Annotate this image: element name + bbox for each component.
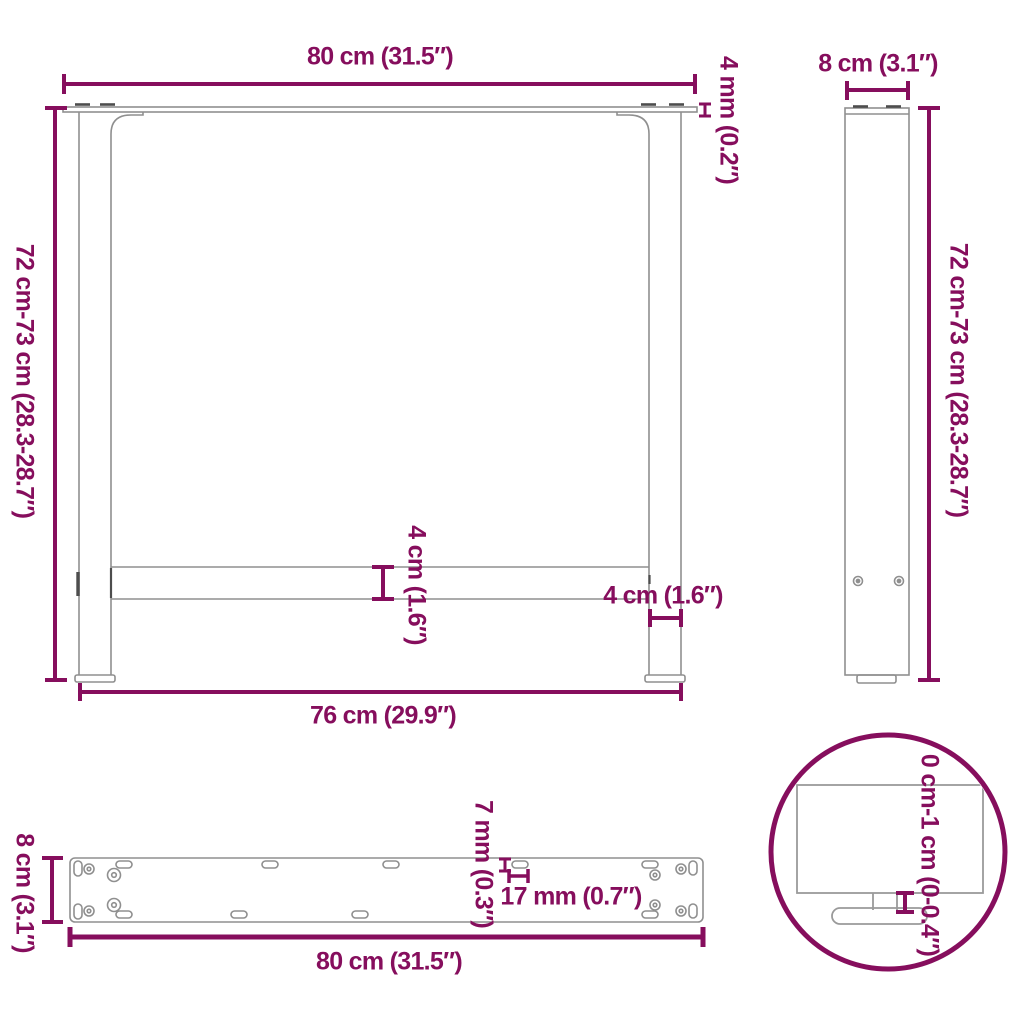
- dim-label-side-height: 72 cm-73 cm (28.3-28.7″): [946, 243, 971, 518]
- slot-hole: [689, 861, 697, 875]
- side-view-drawing: [845, 107, 909, 684]
- dim-label-front-top-width: 80 cm (31.5″): [307, 45, 453, 70]
- dim-slot-length-bracket: [509, 869, 528, 883]
- dim-front-plate-thickness-bracket: [699, 104, 711, 116]
- dim-label-hole-diameter: 7 mm (0.3″): [471, 800, 496, 928]
- side-leg-outline: [845, 108, 909, 675]
- screw-hole: [84, 864, 94, 874]
- dim-adjustment-bracket: [896, 893, 914, 912]
- front-dark-marks: [75, 105, 684, 599]
- dim-label-feet-span: 76 cm (29.9″): [310, 704, 456, 729]
- dim-label-bottom-depth: 8 cm (3.1″): [12, 833, 37, 953]
- slot-hole: [642, 861, 658, 868]
- dim-label-height-adjustment: 0 cm-1 cm (0-0.4″): [917, 754, 942, 956]
- slot-hole: [352, 911, 368, 918]
- slot-hole: [512, 861, 528, 868]
- slot-hole: [116, 911, 132, 918]
- dim-front-top-width-line: [64, 74, 695, 94]
- dim-side-height-line: [918, 108, 940, 680]
- dim-label-crossbar-height: 4 cm (1.6″): [404, 525, 429, 645]
- dim-front-height-line: [45, 108, 67, 680]
- side-foot: [857, 675, 896, 683]
- dim-bottom-length-line: [70, 927, 703, 947]
- detail-leg-section: [797, 785, 983, 893]
- diagram-canvas: 80 cm (31.5″) 4 mm (0.2″) 72 cm-73 cm (2…: [0, 0, 1024, 1024]
- dim-feet-span-line: [80, 683, 681, 701]
- screw-hole: [108, 869, 121, 882]
- dim-label-plate-thickness: 4 mm (0.2″): [716, 56, 741, 184]
- slot-hole: [689, 904, 697, 918]
- product-drawing: [0, 0, 1024, 1024]
- detail-circle: [771, 735, 1005, 969]
- slot-hole: [116, 861, 132, 868]
- dim-side-depth-line: [847, 81, 908, 100]
- front-left-leg-inner-edge: [111, 112, 143, 675]
- slot-hole: [383, 861, 399, 868]
- dim-label-bottom-length: 80 cm (31.5″): [316, 950, 462, 975]
- dim-label-front-height: 72 cm-73 cm (28.3-28.7″): [12, 244, 37, 519]
- slot-hole: [262, 861, 278, 868]
- screw-hole: [650, 900, 660, 910]
- front-top-plate: [63, 107, 697, 112]
- screw-hole: [650, 870, 660, 880]
- front-left-foot: [75, 675, 115, 682]
- front-view-drawing: [63, 105, 697, 683]
- dim-leg-width-bracket: [650, 609, 681, 627]
- detail-view-drawing: [797, 785, 983, 924]
- slot-hole: [231, 911, 247, 918]
- screw-hole: [108, 899, 121, 912]
- slot-hole: [74, 861, 82, 876]
- dim-label-slot-length: 17 mm (0.7″): [500, 885, 641, 910]
- dim-bottom-depth-line: [42, 858, 63, 922]
- dim-crossbar-height-bracket: [372, 567, 394, 599]
- slot-hole: [74, 904, 82, 919]
- screw-hole: [676, 906, 686, 916]
- dim-label-leg-width: 4 cm (1.6″): [603, 584, 723, 609]
- screw-hole: [676, 864, 686, 874]
- slot-hole: [642, 911, 658, 918]
- dim-label-side-depth: 8 cm (3.1″): [818, 52, 938, 77]
- front-right-foot: [645, 675, 685, 682]
- screw-hole: [84, 906, 94, 916]
